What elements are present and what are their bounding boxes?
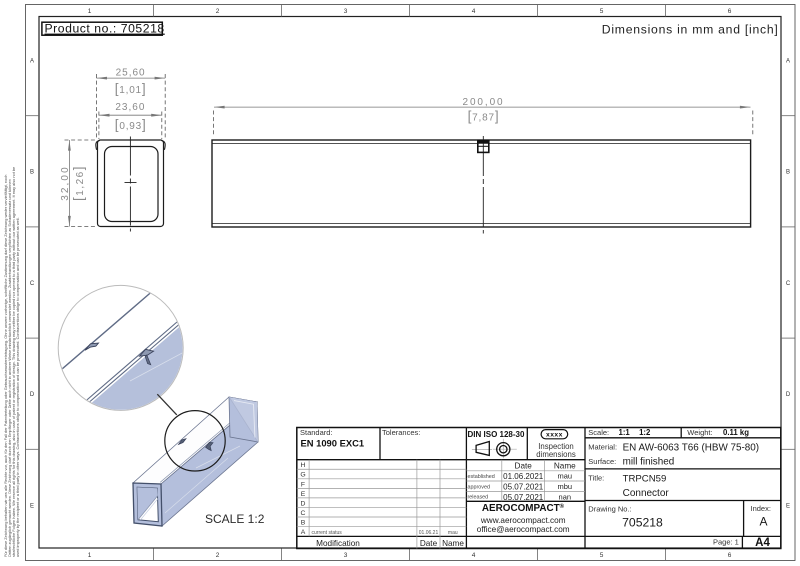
svg-text:mau: mau xyxy=(558,472,573,481)
svg-text:A4: A4 xyxy=(755,537,770,549)
svg-text:Tolerances:: Tolerances: xyxy=(382,428,420,437)
svg-text:05.07.2021: 05.07.2021 xyxy=(503,483,544,492)
svg-text:32,00: 32,00 xyxy=(60,165,71,201)
svg-text:dimensions: dimensions xyxy=(536,450,576,459)
svg-text:Index:: Index: xyxy=(751,504,771,513)
svg-text:E: E xyxy=(301,491,306,498)
svg-text:mill finished: mill finished xyxy=(623,457,675,468)
svg-text:200,00: 200,00 xyxy=(463,97,505,108)
svg-text:23,60: 23,60 xyxy=(115,102,145,113)
svg-text:01.06.2021: 01.06.2021 xyxy=(503,472,544,481)
svg-text:01.06.21: 01.06.21 xyxy=(419,530,439,536)
svg-text:B: B xyxy=(301,520,306,527)
svg-text:Material:: Material: xyxy=(588,443,617,452)
svg-text:Page: 1: Page: 1 xyxy=(713,537,739,546)
svg-text:nan: nan xyxy=(559,492,572,501)
svg-text:G: G xyxy=(300,472,305,479)
svg-text:Surface:: Surface: xyxy=(588,457,616,466)
svg-text:D: D xyxy=(30,392,35,398)
svg-text:A: A xyxy=(759,514,767,528)
svg-text:mbu: mbu xyxy=(558,482,573,491)
svg-text:EN 1090 EXC1: EN 1090 EXC1 xyxy=(301,438,365,449)
svg-text:Dimensions in mm and [inch]: Dimensions in mm and [inch] xyxy=(602,23,779,37)
svg-text:www.aerocompact.com: www.aerocompact.com xyxy=(480,516,566,525)
svg-text:Title:: Title: xyxy=(588,474,604,483)
svg-text:4: 4 xyxy=(472,552,476,559)
svg-text:approved: approved xyxy=(468,484,490,490)
svg-text:Connector: Connector xyxy=(623,488,670,499)
svg-text:Date: Date xyxy=(515,461,533,470)
svg-text:EN AW-6063 T66 (HBW 75-80): EN AW-6063 T66 (HBW 75-80) xyxy=(623,442,759,453)
svg-text:TRPCN59: TRPCN59 xyxy=(623,474,667,485)
svg-text:3: 3 xyxy=(344,8,348,15)
svg-text:C: C xyxy=(301,510,306,517)
svg-text:established: established xyxy=(468,474,495,480)
svg-text:B: B xyxy=(30,170,34,176)
svg-text:2: 2 xyxy=(216,8,220,15)
svg-text:Standard:: Standard: xyxy=(300,428,333,437)
svg-text:Scale:: Scale: xyxy=(588,428,609,437)
svg-text:H: H xyxy=(301,462,306,469)
svg-text:office@aerocompact.com: office@aerocompact.com xyxy=(477,525,570,534)
svg-text:5: 5 xyxy=(600,552,604,559)
svg-text:C: C xyxy=(786,281,791,287)
svg-text:0.11 kg: 0.11 kg xyxy=(723,428,749,437)
svg-text:E: E xyxy=(786,504,790,510)
svg-text:released: released xyxy=(468,495,489,501)
svg-text:Product no.: 705218: Product no.: 705218 xyxy=(45,22,165,36)
svg-text:A: A xyxy=(786,59,790,65)
svg-text:A: A xyxy=(30,59,34,65)
svg-text:F: F xyxy=(301,481,305,488)
svg-text:705218: 705218 xyxy=(622,515,663,529)
svg-text:1: 1 xyxy=(88,552,92,559)
svg-text:1:1: 1:1 xyxy=(619,428,631,437)
svg-text:Weight:: Weight: xyxy=(687,428,712,437)
svg-text:1:2: 1:2 xyxy=(639,428,651,437)
svg-text:4: 4 xyxy=(472,8,476,15)
svg-text:Modification: Modification xyxy=(316,539,360,548)
svg-text:Name: Name xyxy=(554,461,576,470)
svg-text:A: A xyxy=(301,529,306,536)
svg-text:E: E xyxy=(30,504,34,510)
svg-text:3: 3 xyxy=(344,552,348,559)
svg-text:05.07.2021: 05.07.2021 xyxy=(503,493,544,502)
svg-text:C: C xyxy=(30,281,35,287)
svg-text:Drawing No.:: Drawing No.: xyxy=(588,504,631,513)
svg-text:mau: mau xyxy=(448,530,458,536)
svg-text:B: B xyxy=(786,170,790,176)
svg-text:Date: Date xyxy=(420,539,438,548)
svg-text:1: 1 xyxy=(88,8,92,15)
svg-text:6: 6 xyxy=(728,8,732,15)
svg-text:6: 6 xyxy=(728,552,732,559)
svg-text:used improperly by the recipie: used improperly by the recipient or a th… xyxy=(15,217,20,557)
svg-text:xxxx: xxxx xyxy=(546,432,563,439)
svg-text:Name: Name xyxy=(442,539,464,548)
svg-text:2: 2 xyxy=(216,552,220,559)
svg-text:AEROCOMPACT®: AEROCOMPACT® xyxy=(482,503,565,514)
svg-text:DIN ISO 128-30: DIN ISO 128-30 xyxy=(468,430,525,439)
svg-text:25,60: 25,60 xyxy=(116,67,146,78)
svg-text:D: D xyxy=(301,500,306,507)
svg-text:D: D xyxy=(786,392,791,398)
svg-text:current status: current status xyxy=(312,530,343,536)
svg-text:SCALE 1:2: SCALE 1:2 xyxy=(205,512,265,526)
svg-text:5: 5 xyxy=(600,8,604,15)
